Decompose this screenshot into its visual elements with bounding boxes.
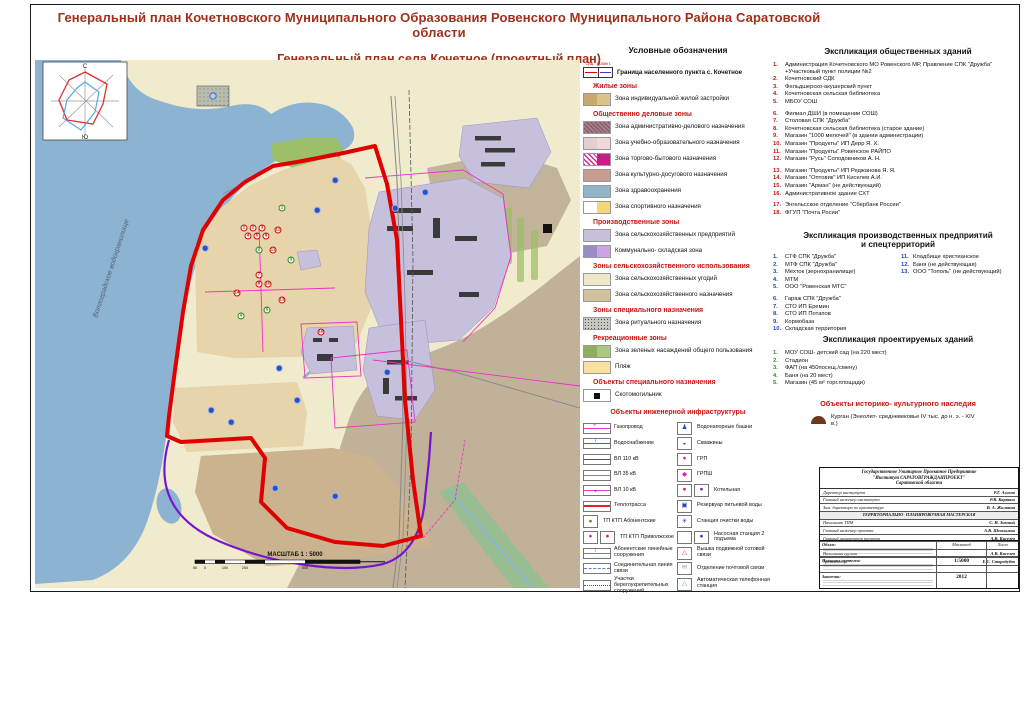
marker-number: 5 <box>256 234 258 238</box>
map-area: С Ю Волгоградское водохранилище МАСШТАБ … <box>35 60 580 588</box>
boundary-swatch <box>583 67 613 78</box>
zone-swatch <box>583 345 611 358</box>
item-text: СТО ИП Потапов <box>785 311 831 318</box>
infrastructure-item-label: Участки берегоукрепительных сооружений <box>614 577 677 595</box>
person-name: С. И. Зимний <box>989 520 1015 525</box>
zone-swatch <box>583 93 611 106</box>
list-item: 5. Магазин (45 м² торг.площади) <box>773 380 1023 387</box>
map-marker-projected: 1 <box>279 205 286 212</box>
green-strip <box>517 218 524 282</box>
legend-item: Зона индивидуальной жилой застройки <box>583 93 773 106</box>
item-number: 6. <box>773 296 785 303</box>
legend-item-label: Зона сельскохозяйственных угодий <box>615 276 717 283</box>
infrastructure-legend-heading: Объекты инженерной инфраструктуры <box>583 409 773 416</box>
scalebar-tick: 100 <box>222 566 228 570</box>
item-text: Административное здание СХТ <box>785 191 870 198</box>
item-text: Фельдшерско-акушерский пункт <box>785 84 872 91</box>
point-symbol-box: ● <box>694 484 709 497</box>
legend-entry: Зона сельскохозяйственных предприятий <box>583 229 773 242</box>
zone-swatch <box>583 273 611 286</box>
item-text: Стадион <box>785 358 808 365</box>
line-swatch <box>583 580 611 591</box>
stamp-row: Начальник ТПМС. И. Зимний <box>820 520 1018 528</box>
marker-number: 16 <box>319 330 324 334</box>
role-label: Начальник ТПМ <box>823 520 853 525</box>
legend-entry: Зона здравоохранения <box>583 185 773 198</box>
infrastructure-legend-item: Теплотрасса <box>583 499 677 514</box>
infrastructure-item-label: Абонентские линейные сооружения <box>614 547 677 559</box>
projected-buildings-section: Экспликация проектируемых зданий 1. МОУ … <box>773 335 1023 388</box>
infrastructure-point-icon <box>392 205 399 212</box>
item-number: 2. <box>773 76 785 83</box>
infrastructure-icon: ● <box>700 487 704 494</box>
zone-legend-entries: Жилые зоны Зона индивидуальной жилой зас… <box>583 83 773 402</box>
infrastructure-point-icon <box>314 207 321 214</box>
infrastructure-icon: ● <box>683 487 687 494</box>
point-symbol-box: ♟ <box>677 422 692 435</box>
list-item: 12. Баня (не действующая) <box>901 262 1019 269</box>
legend-item: Зона торгово-бытового назначения <box>583 153 773 166</box>
year-value: 2012 <box>936 572 986 588</box>
wind-rose: С Ю <box>43 62 127 141</box>
infrastructure-point-icon <box>202 245 209 252</box>
item-text: СТО ИП Еремин <box>785 304 829 311</box>
item-text: Кладбище христианское <box>913 254 979 261</box>
zone-swatch <box>583 317 611 330</box>
legend-item: Зона ритуального назначения <box>583 317 773 330</box>
infrastructure-icon: ● <box>606 534 610 541</box>
zone-swatch <box>583 201 611 214</box>
item-number: 10. <box>773 141 785 148</box>
item-number: 4. <box>773 277 785 284</box>
marker-number: 1 <box>281 206 283 210</box>
legend-entry: Пляж <box>583 361 773 374</box>
legend-entry: Зона спортивного назначения <box>583 201 773 214</box>
legend-item: Коммунально- складская зона <box>583 245 773 258</box>
boundary-type-labels: сущ. проект. <box>583 61 611 66</box>
line-swatch <box>583 485 611 496</box>
scalebar-tick: 500 <box>302 566 308 570</box>
list-item: 12. Магазин "Русь" Солодовников А. Н. <box>773 156 1023 163</box>
item-text: МБОУ СОШ <box>785 99 817 106</box>
line-swatch <box>583 423 611 434</box>
industrial-list-col1: 1. СТФ СПК "Дружба" 2. МТФ СПК "Дружба" … <box>773 254 901 334</box>
legend-item: Зона культурно-досугового назначения <box>583 169 773 182</box>
item-number: 9. <box>773 319 785 326</box>
infrastructure-legend-item: ВЛ 35 кВ <box>583 468 677 483</box>
item-number: 3. <box>773 84 785 91</box>
item-text: Кочетновский СДК <box>785 76 835 83</box>
infrastructure-item-label: ВЛ 10 кВ <box>614 488 636 494</box>
infrastructure-legend-item: Газопровод <box>583 421 677 436</box>
marker-number: 12 <box>276 228 281 232</box>
legend-entry: Скотомогильник <box>583 389 773 402</box>
infrastructure-legend-item: ВЛ 10 кВ <box>583 483 677 498</box>
legend-item-label: Зона культурно-досугового назначения <box>615 172 727 179</box>
legend-entry: Зоны специального назначения <box>583 307 773 314</box>
legend-item-label: Зона сельскохозяйственного назначения <box>615 292 733 299</box>
infrastructure-item-label: Отделение почтовой связи <box>697 566 764 572</box>
point-symbol-box: ● <box>677 453 692 466</box>
object-cell: Объем: <box>820 541 936 556</box>
legend-entry: Зона сельскохозяйственных угодий <box>583 273 773 286</box>
list-item: 4. Баня (на 20 мест) <box>773 373 1023 380</box>
item-number: 4. <box>773 91 785 98</box>
organization-block: Государственное Унитарное Проектное Пред… <box>820 468 1018 489</box>
infrastructure-item-label: Теплотрасса <box>614 503 646 509</box>
item-number: 11. <box>901 254 913 261</box>
legend-item-label: Зона ритуального назначения <box>615 320 701 327</box>
sheet-value-cell <box>986 556 1018 572</box>
legend-item: Зона зеленых насаждений общего пользован… <box>583 345 773 358</box>
item-number: 12. <box>773 156 785 163</box>
infrastructure-icon: ▣ <box>681 503 687 510</box>
public-buildings-title: Экспликация общественных зданий <box>773 47 1023 56</box>
legend-entry: Зона учебно-образовательного назначения <box>583 137 773 150</box>
line-swatch <box>583 454 611 465</box>
item-text: Магазин (45 м² торг.площади) <box>785 380 865 387</box>
infrastructure-point-icon <box>208 407 215 414</box>
infrastructure-legend-item: ● ГРП <box>677 452 773 467</box>
main-title: Генеральный план Кочетновского Муниципал… <box>39 10 839 40</box>
map-marker-public: 4 <box>245 233 252 240</box>
map-marker-public: 5 <box>254 233 261 240</box>
item-number: 5. <box>773 380 785 387</box>
item-number: 11. <box>773 149 785 156</box>
role-label: Главный инженер проекта <box>823 528 874 533</box>
legend-item: Зона сельскохозяйственного назначения <box>583 289 773 302</box>
infrastructure-legend-item: △ Вышка подвижной сотовой связи <box>677 546 773 561</box>
scale-header: Масштаб <box>936 541 986 556</box>
item-text: Магазин "Продукты" ИП Реджанова Я. Я. <box>785 168 896 175</box>
point-symbol-box: ● <box>677 484 692 497</box>
infrastructure-item-label: Автоматическая телефонная станция <box>697 578 773 590</box>
point-symbol-box: ✳ <box>677 515 692 528</box>
zone-swatch <box>583 229 611 242</box>
infrastructure-item-label: ВЛ 110 кВ <box>614 457 639 463</box>
map-marker-projected: 3 <box>288 257 295 264</box>
legend-entry: Зона административно-делового назначения <box>583 121 773 134</box>
infrastructure-item-label: Газопровод <box>614 425 643 431</box>
infrastructure-point-icon <box>272 485 279 492</box>
cattle-burial-site <box>543 224 552 233</box>
workshop-band: ТЕРРИТОРИАЛЬНО- ПЛАНИРОВОЧНАЯ МАСТЕРСКАЯ <box>820 512 1018 520</box>
projected-buildings-list: 1. МОУ СОШ- детский сад (на 220 мест) 2.… <box>773 350 1023 387</box>
item-text: Магазин "Продукты" Ровенское РАЙПО <box>785 149 891 156</box>
person-name: Р.В. Карякин <box>990 497 1015 502</box>
object-label: Объем: <box>822 542 934 547</box>
item-number: 2. <box>773 358 785 365</box>
project-label: проект. <box>597 61 611 66</box>
legend-entry: Зона торгово-бытового назначения <box>583 153 773 166</box>
infrastructure-legend-item: ВЛ 110 кВ <box>583 452 677 467</box>
heritage-text: Курган (Энеолит- средневековье IV тыс. д… <box>831 414 981 427</box>
map-marker-public: 11 <box>270 247 277 254</box>
point-symbol-box: △ <box>677 578 692 591</box>
legend-section-heading: Объекты специального назначения <box>593 379 773 386</box>
marker-number: 4 <box>240 314 242 318</box>
legend-item-label: Зона сельскохозяйственных предприятий <box>615 232 735 239</box>
infrastructure-item-label: ТП КТП Абонентские <box>603 519 656 525</box>
infrastructure-point-icon <box>332 177 339 184</box>
item-number: 6. <box>773 111 785 118</box>
drawing-name-cell: Название чертежа: <box>820 556 936 572</box>
stamp-row: Главный инженер проектаА.В. Шпильман <box>820 527 1018 535</box>
infrastructure-lines-column: Газопровод Водоснабжение ВЛ 110 кВ <box>583 420 677 596</box>
item-text: ООО "Тополь" (не действующий) <box>913 269 1002 276</box>
infrastructure-item-label: Водонапорные башни <box>697 425 752 431</box>
zone-swatch <box>583 361 611 374</box>
marker-number: 5 <box>266 308 268 312</box>
infrastructure-icon: △ <box>682 581 687 588</box>
item-number: 9. <box>773 133 785 140</box>
item-number: 7. <box>773 118 785 125</box>
infrastructure-legend-item: ● ТП КТП Абонентские <box>583 515 677 530</box>
heritage-item: Курган (Энеолит- средневековье IV тыс. д… <box>811 414 981 427</box>
marker-number: 4 <box>247 234 249 238</box>
scalebar-tick: 0 <box>204 566 206 570</box>
item-number: 18. <box>773 210 785 217</box>
item-text: Складская территория <box>785 326 846 333</box>
infrastructure-legend-item: ● ● ТП КТП Приволжское <box>583 530 677 545</box>
infrastructure-item-label: Станция очистки воды <box>697 519 753 525</box>
legend-entry: Зона зеленых насаждений общего пользован… <box>583 345 773 358</box>
infrastructure-icon: ◆ <box>682 472 687 479</box>
legend-section-heading: Зоны сельскохозяйственного использования <box>593 263 773 270</box>
legend-item-label: Зона зеленых насаждений общего пользован… <box>615 348 752 355</box>
legend-item: Скотомогильник <box>583 389 773 402</box>
list-item: 11. Кладбище христианское <box>901 254 1019 261</box>
list-item: 1. МОУ СОШ- детский сад (на 220 мест) <box>773 350 1023 357</box>
list-item: 7. Столовая СПК "Дружба" <box>773 118 1023 125</box>
list-item: 11. Магазин "Продукты" Ровенское РАЙПО <box>773 149 1023 156</box>
infrastructure-legend-item: ✳ Станция очистки воды <box>677 515 773 530</box>
item-number: 15. <box>773 183 785 190</box>
legend-section-heading: Производственные зоны <box>593 219 773 226</box>
green-strip <box>531 230 538 280</box>
list-item: 16. Административное здание СХТ <box>773 191 1023 198</box>
zone-swatch <box>583 245 611 258</box>
list-item: 17. Энгельсское отделение "Сбербанк Росс… <box>773 202 1023 209</box>
general-plan-map: С Ю Волгоградское водохранилище МАСШТАБ … <box>35 60 580 588</box>
scale-value: 1:5000 <box>936 556 986 572</box>
legend-entry: Рекреационные зоны <box>583 335 773 342</box>
microtext-placeholder <box>823 580 933 587</box>
stamp-row: Директор институтаР.Г. Ахохов <box>820 489 1018 497</box>
list-item: 8. СТО ИП Потапов <box>773 311 901 318</box>
list-item: 6. Гараж СПК "Дружба" <box>773 296 901 303</box>
map-marker-public: 10 <box>265 281 272 288</box>
stamp-rows-project: Начальник ТПМС. И. ЗимнийГлавный инженер… <box>820 520 1018 543</box>
infrastructure-point-icon <box>332 493 339 500</box>
item-text: Администрация Кочетновского МО Ровенског… <box>785 62 1023 75</box>
infrastructure-item-label: Соединительная линия связи <box>614 563 677 575</box>
item-text: Мехток (зернохранилище) <box>785 269 855 276</box>
customer-cell: Заказчик: <box>820 572 936 588</box>
item-text: Баня (не действующая) <box>913 262 977 269</box>
item-number: 1. <box>773 350 785 357</box>
point-symbol-box: ● <box>600 531 615 544</box>
title-stamp: Государственное Унитарное Проектное Пред… <box>819 467 1019 589</box>
boundary-label: Граница населенного пункта с. Кочетное <box>617 69 742 76</box>
sheet-header: Лист <box>986 541 1018 556</box>
item-text: Магазин "Арман" (не действующий) <box>785 183 881 190</box>
item-number: 1. <box>773 254 785 261</box>
infrastructure-point-icon <box>384 369 391 376</box>
list-item: 8. Кочетновская сельская библиотека (ста… <box>773 126 1023 133</box>
item-text: ФАП (на 450посещ./смену) <box>785 365 857 372</box>
legend-item-label: Зона индивидуальной жилой застройки <box>615 96 729 103</box>
map-marker-public: 2 <box>250 225 257 232</box>
map-marker-public: 9 <box>263 233 270 240</box>
zone-swatch <box>583 169 611 182</box>
industrial-list-col2: 11. Кладбище христианское 12. Баня (не д… <box>901 254 1019 334</box>
item-number: 13. <box>773 168 785 175</box>
item-number: 3. <box>773 269 785 276</box>
point-symbol-box: ✉ <box>677 562 692 575</box>
list-item: 9. Магазин "1000 мелочей" (в здании адми… <box>773 133 1023 140</box>
item-number: 12. <box>901 262 913 269</box>
legend-item-label: Зона здравоохранения <box>615 188 681 195</box>
legend-entry: Коммунально- складская зона <box>583 245 773 258</box>
map-marker-public: 8 <box>256 281 263 288</box>
list-item: 3. Мехток (зернохранилище) <box>773 269 901 276</box>
map-marker-public: 12 <box>275 227 282 234</box>
legend-title: Условные обозначения <box>583 45 773 55</box>
role-label: Директор института <box>823 490 865 495</box>
map-marker-public: 3 <box>259 225 266 232</box>
map-marker-public: 13 <box>279 297 286 304</box>
marker-number: 9 <box>265 234 267 238</box>
point-symbol-box: ● <box>583 515 598 528</box>
item-number: 8. <box>773 311 785 318</box>
scale-caption: МАСШТАБ 1 : 5000 <box>267 552 323 558</box>
list-item: 3. ФАП (на 450посещ./смену) <box>773 365 1023 372</box>
list-item: 1. СТФ СПК "Дружба" <box>773 254 901 261</box>
list-item: 1. Администрация Кочетновского МО Ровенс… <box>773 62 1023 75</box>
existing-label: сущ. <box>583 61 597 66</box>
list-item: 6. Филиал ДШИ (в помещении СОШ) <box>773 111 1023 118</box>
marker-number: 3 <box>290 258 292 262</box>
map-marker-public: 14 <box>234 290 241 297</box>
line-swatch <box>583 501 611 512</box>
map-marker-public: 16 <box>318 329 325 336</box>
role-label: Главный инженер института <box>823 497 880 502</box>
infrastructure-legend: Газопровод Водоснабжение ВЛ 110 кВ <box>583 420 773 596</box>
infrastructure-legend-item: △ Автоматическая телефонная станция <box>677 577 773 592</box>
zone-swatch <box>583 389 611 402</box>
infrastructure-icon: ✉ <box>682 565 687 572</box>
public-buildings-list: 1. Администрация Кочетновского МО Ровенс… <box>773 62 1023 216</box>
item-text: Магазин "Продукты" ИП Дерр Я. Х. <box>785 141 879 148</box>
zone-swatch <box>583 121 611 134</box>
legend-item-label: Зона учебно-образовательного назначения <box>615 140 740 147</box>
public-buildings-section: Экспликация общественных зданий 1. Админ… <box>773 47 1023 217</box>
role-label: Зам. директора по архитектуре <box>823 505 884 510</box>
item-number: 8. <box>773 126 785 133</box>
legend-section-heading: Рекреационные зоны <box>593 335 773 342</box>
list-item: 2. Стадион <box>773 358 1023 365</box>
infrastructure-item-label: Резервуар питьевой воды <box>697 503 762 509</box>
infrastructure-item-label: Водоснабжение <box>614 441 654 447</box>
infrastructure-legend-item: Соединительная линия связи <box>583 561 677 576</box>
infrastructure-legend-item: ● Насосная станция 2 подъема <box>677 530 773 545</box>
infrastructure-item-label: Скважины <box>697 441 723 447</box>
infrastructure-legend-item: ▣ Резервуар питьевой воды <box>677 499 773 514</box>
list-item: 14. Магазин "Оптовик" ИП Киселев А.И. <box>773 175 1023 182</box>
list-item: 4. МТМ <box>773 277 901 284</box>
item-number: 5. <box>773 99 785 106</box>
legend-entry: Зоны сельскохозяйственного использования <box>583 263 773 270</box>
legend-item: Зона учебно-образовательного назначения <box>583 137 773 150</box>
infrastructure-item-label: ГРП <box>697 457 707 463</box>
item-number: 7. <box>773 304 785 311</box>
point-symbol-box: ◒ <box>677 437 692 450</box>
infrastructure-point-icon <box>422 189 429 196</box>
stamp-rows-management: Директор институтаР.Г. АхоховГлавный инж… <box>820 489 1018 512</box>
map-marker-projected: 2 <box>256 247 263 254</box>
list-item: 15. Магазин "Арман" (не действующий) <box>773 183 1023 190</box>
list-item: 2. Кочетновский СДК <box>773 76 1023 83</box>
marker-number: 11 <box>271 248 276 252</box>
compass-north-label: С <box>83 64 88 70</box>
infrastructure-legend-item: Участки берегоукрепительных сооружений <box>583 577 677 595</box>
item-text: Магазин "1000 мелочей" (в здании админис… <box>785 133 923 140</box>
map-marker-projected: 4 <box>238 313 245 320</box>
heritage-section: Объекты историко- культурного наследия К… <box>773 399 1023 427</box>
item-number: 4. <box>773 373 785 380</box>
legend-item-label: Зона торгово-бытового назначения <box>615 156 716 163</box>
stamp-row: Зам. директора по архитектуреВ. А. Жилки… <box>820 504 1018 512</box>
legend-entry: Зона культурно-досугового назначения <box>583 169 773 182</box>
boundary-legend-row: Граница населенного пункта с. Кочетное <box>583 67 773 78</box>
item-text: МТМ <box>785 277 798 284</box>
legend-item: Зона здравоохранения <box>583 185 773 198</box>
marker-number: 2 <box>258 248 260 252</box>
infrastructure-icon: ● <box>589 534 593 541</box>
infrastructure-legend-item: ♟ Водонапорные башни <box>677 421 773 436</box>
infrastructure-item-label: Насосная станция 2 подъема <box>714 532 773 544</box>
item-number: 3. <box>773 365 785 372</box>
item-number: 2. <box>773 262 785 269</box>
legend-entry: Объекты специального назначения <box>583 379 773 386</box>
legend-item: Зона сельскохозяйственных угодий <box>583 273 773 286</box>
item-number: 5. <box>773 284 785 291</box>
infrastructure-icon: △ <box>682 550 687 557</box>
compass-south-label: Ю <box>82 135 88 141</box>
list-item: 7. СТО ИП Еремин <box>773 304 901 311</box>
stamp-bottom-grid: Объем: Масштаб Лист Название чертежа: 1:… <box>820 540 1018 588</box>
item-text: Магазин "Русь" Солодовников А. Н. <box>785 156 881 163</box>
point-symbol-box <box>677 531 692 544</box>
infrastructure-points-column: ♟ Водонапорные башни ◒ Скважины ● ГРП <box>677 420 773 596</box>
item-text: СТФ СПК "Дружба" <box>785 254 836 261</box>
zone-swatch <box>583 137 611 150</box>
infrastructure-legend-item: ✉ Отделение почтовой связи <box>677 561 773 576</box>
legend-entry: Зона ритуального назначения <box>583 317 773 330</box>
list-item: 13. ООО "Тополь" (не действующий) <box>901 269 1019 276</box>
scalebar-tick: 200 <box>242 566 248 570</box>
map-marker-public: 7 <box>256 272 263 279</box>
point-symbol-box: ● <box>583 531 598 544</box>
microtext-placeholder <box>823 564 933 571</box>
industrial-title-line2: и спецтерриторий <box>773 240 1023 249</box>
item-number: 10. <box>773 326 785 333</box>
heritage-title: Объекты историко- культурного наследия <box>773 399 1023 408</box>
legend-entry: Зона индивидуальной жилой застройки <box>583 93 773 106</box>
person-name: В. А. Жилкина <box>987 505 1015 510</box>
list-item: 10. Магазин "Продукты" ИП Дерр Я. Х. <box>773 141 1023 148</box>
